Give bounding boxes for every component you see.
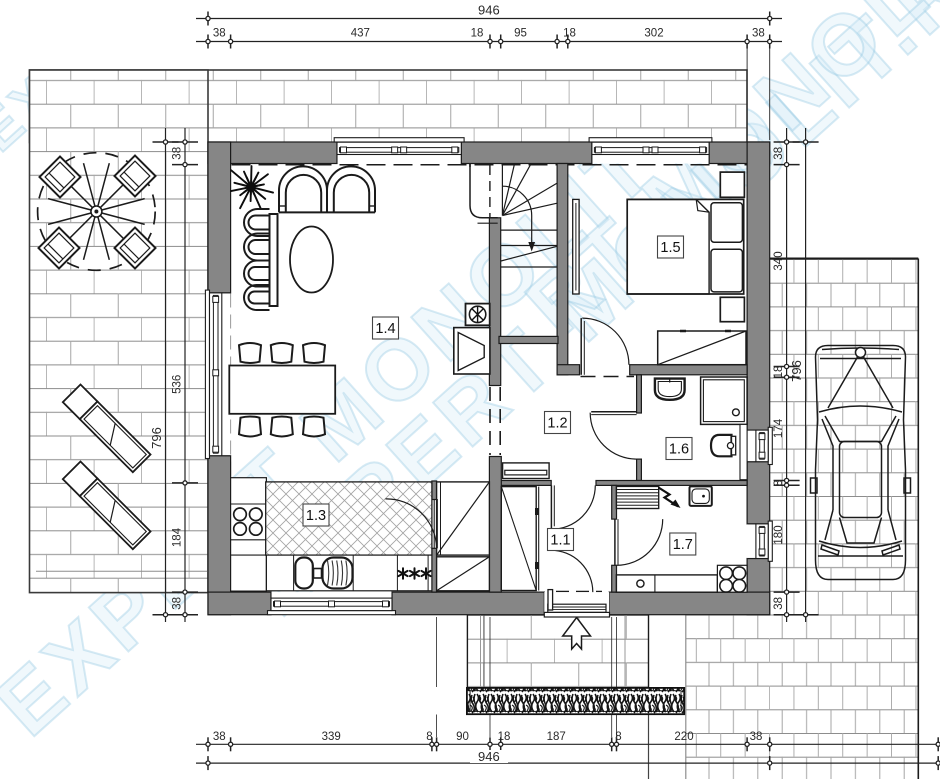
svg-text:946: 946: [478, 749, 500, 764]
svg-text:38: 38: [773, 147, 785, 160]
svg-text:796: 796: [149, 427, 164, 449]
svg-text:38: 38: [172, 147, 184, 160]
svg-text:18: 18: [471, 28, 484, 40]
svg-text:1.2: 1.2: [547, 416, 567, 432]
svg-text:38: 38: [213, 28, 226, 40]
svg-text:339: 339: [322, 731, 341, 743]
svg-text:1.6: 1.6: [669, 442, 689, 458]
svg-text:1.5: 1.5: [660, 240, 680, 256]
svg-text:38: 38: [750, 731, 763, 743]
svg-text:90: 90: [456, 731, 469, 743]
svg-text:340: 340: [773, 251, 785, 270]
svg-text:187: 187: [547, 731, 566, 743]
svg-text:8: 8: [426, 731, 432, 743]
svg-text:174: 174: [773, 418, 785, 438]
svg-text:437: 437: [351, 28, 370, 40]
svg-text:38: 38: [752, 28, 765, 40]
svg-text:536: 536: [172, 375, 184, 394]
svg-text:184: 184: [172, 527, 184, 547]
svg-text:302: 302: [644, 28, 663, 40]
svg-text:38: 38: [213, 731, 226, 743]
svg-text:18: 18: [773, 366, 785, 379]
svg-text:18: 18: [563, 28, 576, 40]
svg-text:1.7: 1.7: [673, 537, 693, 553]
svg-text:796: 796: [789, 360, 804, 382]
svg-text:18: 18: [498, 731, 511, 743]
svg-text:220: 220: [674, 731, 693, 743]
svg-text:946: 946: [478, 3, 500, 18]
svg-text:38: 38: [172, 597, 184, 610]
svg-text:1.4: 1.4: [375, 321, 395, 337]
svg-text:1.1: 1.1: [550, 533, 570, 549]
svg-text:1.3: 1.3: [306, 508, 326, 524]
svg-text:180: 180: [773, 525, 785, 544]
svg-text:38: 38: [773, 597, 785, 610]
svg-text:8: 8: [773, 480, 785, 486]
svg-text:95: 95: [514, 28, 527, 40]
